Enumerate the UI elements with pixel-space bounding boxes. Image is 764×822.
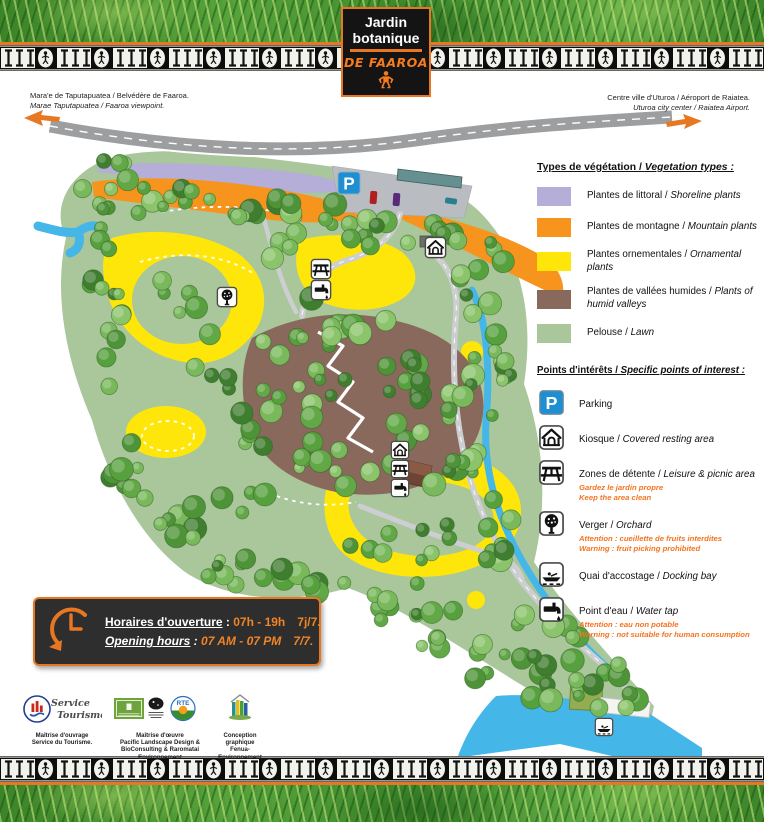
legend-panel: Types de végétation / Vegetation types :… — [537, 162, 761, 649]
clock-icon — [45, 602, 97, 661]
vegetation-legend-item: Plantes de montagne / Mountain plants — [537, 218, 761, 237]
picnic-icon — [539, 460, 565, 486]
service-tourisme-logo: ServiceTourisme — [22, 692, 102, 726]
vegetation-legend-item: Plantes de littoral / Shoreline plants — [537, 187, 761, 206]
vegetation-legend-item: Plantes ornementales / Ornamental plants — [537, 249, 761, 274]
legend-color-swatch — [537, 290, 571, 309]
garden-map-poster: P Mara'e de Taputapuatea / Belvédère de … — [0, 0, 764, 822]
car — [370, 191, 378, 204]
maitrise-oeuvre-logos: RTE — [114, 692, 206, 726]
opening-hours-box: Horaires d'ouverture : 07h - 19h7j/7. Op… — [33, 597, 321, 666]
poi-warning: Attention : eau non potableWarning : not… — [579, 620, 750, 639]
poi-legend-item: Zones de détente / Leisure & picnic area… — [537, 460, 761, 502]
vegetation-legend-item: Pelouse / Lawn — [537, 324, 761, 343]
poi-legend-items: PParking Kiosque / Covered resting areaZ… — [537, 390, 761, 640]
poi-warning: Gardez le jardin propreKeep the area cle… — [579, 483, 755, 502]
picnic-area-marker[interactable] — [391, 460, 408, 477]
opening-hours-text: Horaires d'ouverture : 07h - 19h7j/7. Op… — [105, 610, 321, 653]
credit-block: ServiceTourismeMaîtrise d'ouvrageService… — [22, 692, 102, 747]
docking-bay-marker[interactable] — [595, 718, 612, 735]
svg-text:P: P — [343, 173, 355, 193]
poi-legend-item: Quai d'accostage / Docking bay — [537, 562, 761, 588]
credits-row: ServiceTourismeMaîtrise d'ouvrageService… — [22, 692, 262, 762]
credit-block: RTEMaîtrise d'œuvrePacific Landscape Des… — [114, 692, 206, 762]
poi-warning: Attention : cueillette de fruits interdi… — [579, 534, 722, 553]
vegetation-legend-items: Plantes de littoral / Shoreline plantsPl… — [537, 187, 761, 343]
poi-legend-item: Point d'eau / Water tapAttention : eau n… — [537, 597, 761, 639]
title-divider — [350, 49, 422, 52]
car — [393, 193, 401, 206]
tiki-icon — [376, 70, 396, 95]
svg-text:Tourisme: Tourisme — [57, 710, 102, 721]
title-line-1: Jardin — [365, 15, 407, 31]
legend-color-swatch — [537, 218, 571, 237]
svg-text:P: P — [546, 393, 558, 413]
poi-legend-title: Points d'intérêts / Specific points of i… — [537, 365, 761, 376]
fenua-environnement-logo — [225, 692, 255, 726]
svg-text:Service: Service — [51, 698, 90, 709]
map-title: Jardin botanique DE FAAROA — [341, 7, 431, 97]
poi-legend: Points d'intérêts / Specific points of i… — [537, 365, 761, 640]
title-line-2: botanique — [353, 31, 420, 47]
title-subtitle: DE FAAROA — [344, 55, 428, 70]
kiosk-icon — [539, 425, 565, 451]
parking-sign-marker[interactable]: P — [338, 172, 361, 195]
dock-icon — [539, 562, 565, 588]
poi-legend-item: Verger / OrchardAttention : cueillette d… — [537, 511, 761, 553]
picnic-area-marker[interactable] — [311, 259, 330, 278]
legend-color-swatch — [537, 324, 571, 343]
orchard-icon — [539, 511, 565, 537]
orange-rule-bottom — [0, 782, 764, 785]
kiosk-marker[interactable] — [425, 237, 445, 257]
legend-color-swatch — [537, 187, 571, 206]
poi-legend-item: PParking — [537, 390, 761, 416]
vegetation-legend-title: Types de végétation / Vegetation types : — [537, 162, 761, 173]
poi-legend-item: Kiosque / Covered resting area — [537, 425, 761, 451]
orchard-marker[interactable] — [217, 287, 236, 306]
parking-icon: P — [539, 390, 565, 416]
direction-label-east: Centre ville d'Uturoa / Aéroport de Raia… — [555, 93, 750, 113]
svg-text:RTE: RTE — [177, 700, 191, 707]
water-tap-marker[interactable] — [391, 479, 408, 496]
tap-icon — [539, 597, 565, 623]
credit-block: Conception graphiqueFenua-Environnement — [218, 692, 262, 762]
legend-color-swatch — [537, 252, 571, 271]
direction-label-west: Mara'e de Taputapuatea / Belvédère de Fa… — [30, 91, 260, 111]
vegetation-legend-item: Plantes de vallées humides / Plants of h… — [537, 286, 761, 311]
water-tap-marker[interactable] — [311, 280, 330, 299]
kiosk-marker[interactable] — [391, 441, 408, 458]
